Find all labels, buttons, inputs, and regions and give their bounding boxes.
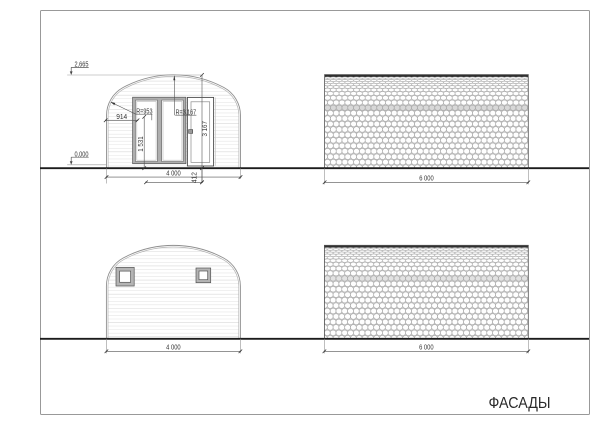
svg-text:412: 412 xyxy=(189,172,198,183)
svg-text:R=953: R=953 xyxy=(136,106,152,115)
svg-text:6 000: 6 000 xyxy=(419,174,434,183)
svg-text:4 000: 4 000 xyxy=(166,343,181,352)
svg-text:6 000: 6 000 xyxy=(419,343,434,352)
svg-text:3 167: 3 167 xyxy=(200,121,209,137)
svg-text:R=3,167: R=3,167 xyxy=(176,107,197,116)
svg-text:2,665: 2,665 xyxy=(75,60,89,69)
svg-text:4 000: 4 000 xyxy=(166,168,181,177)
svg-text:ФАСАДЫ: ФАСАДЫ xyxy=(489,395,551,412)
svg-text:0,000: 0,000 xyxy=(75,149,89,158)
svg-text:914: 914 xyxy=(116,112,127,121)
svg-text:1 531: 1 531 xyxy=(136,136,145,152)
